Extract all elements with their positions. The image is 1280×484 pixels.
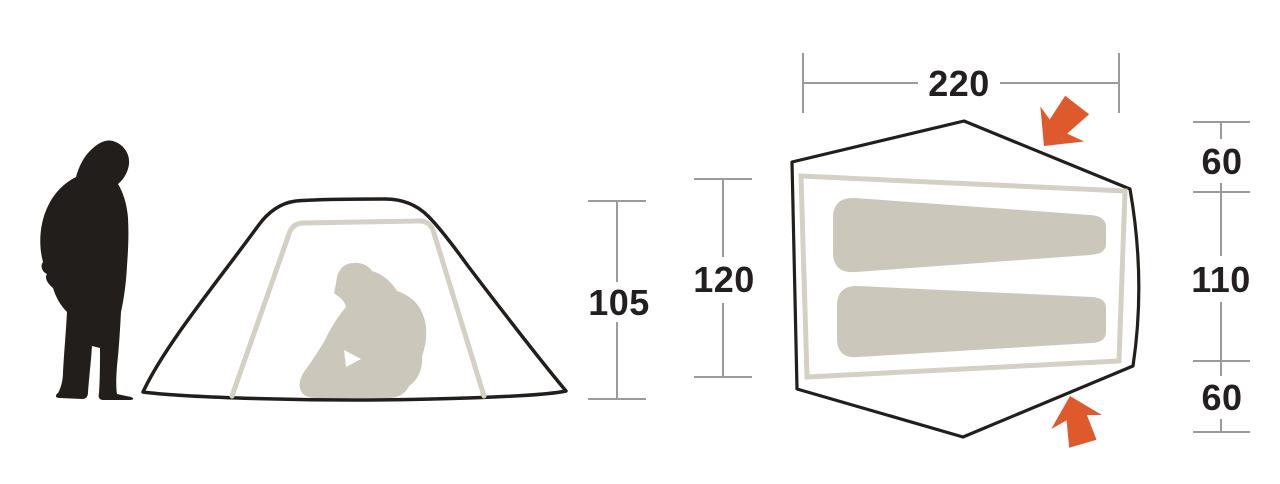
- diagram-svg: 105 220 120: [0, 0, 1280, 484]
- standing-person-silhouette: [40, 140, 133, 400]
- tent-dimensions-diagram: 105 220 120: [0, 0, 1280, 484]
- length-dimension-label: 220: [928, 63, 990, 104]
- inner-width-dimension-label: 110: [1191, 259, 1251, 300]
- vestibule-bottom-dimension-label: 60: [1201, 377, 1242, 418]
- side-view: 105: [40, 140, 650, 400]
- top-view: 220 120 60 110 60: [693, 53, 1251, 451]
- height-dimension-label: 105: [588, 282, 650, 323]
- width-dimension-label: 120: [693, 259, 755, 300]
- vestibule-top-dimension-label: 60: [1201, 141, 1242, 182]
